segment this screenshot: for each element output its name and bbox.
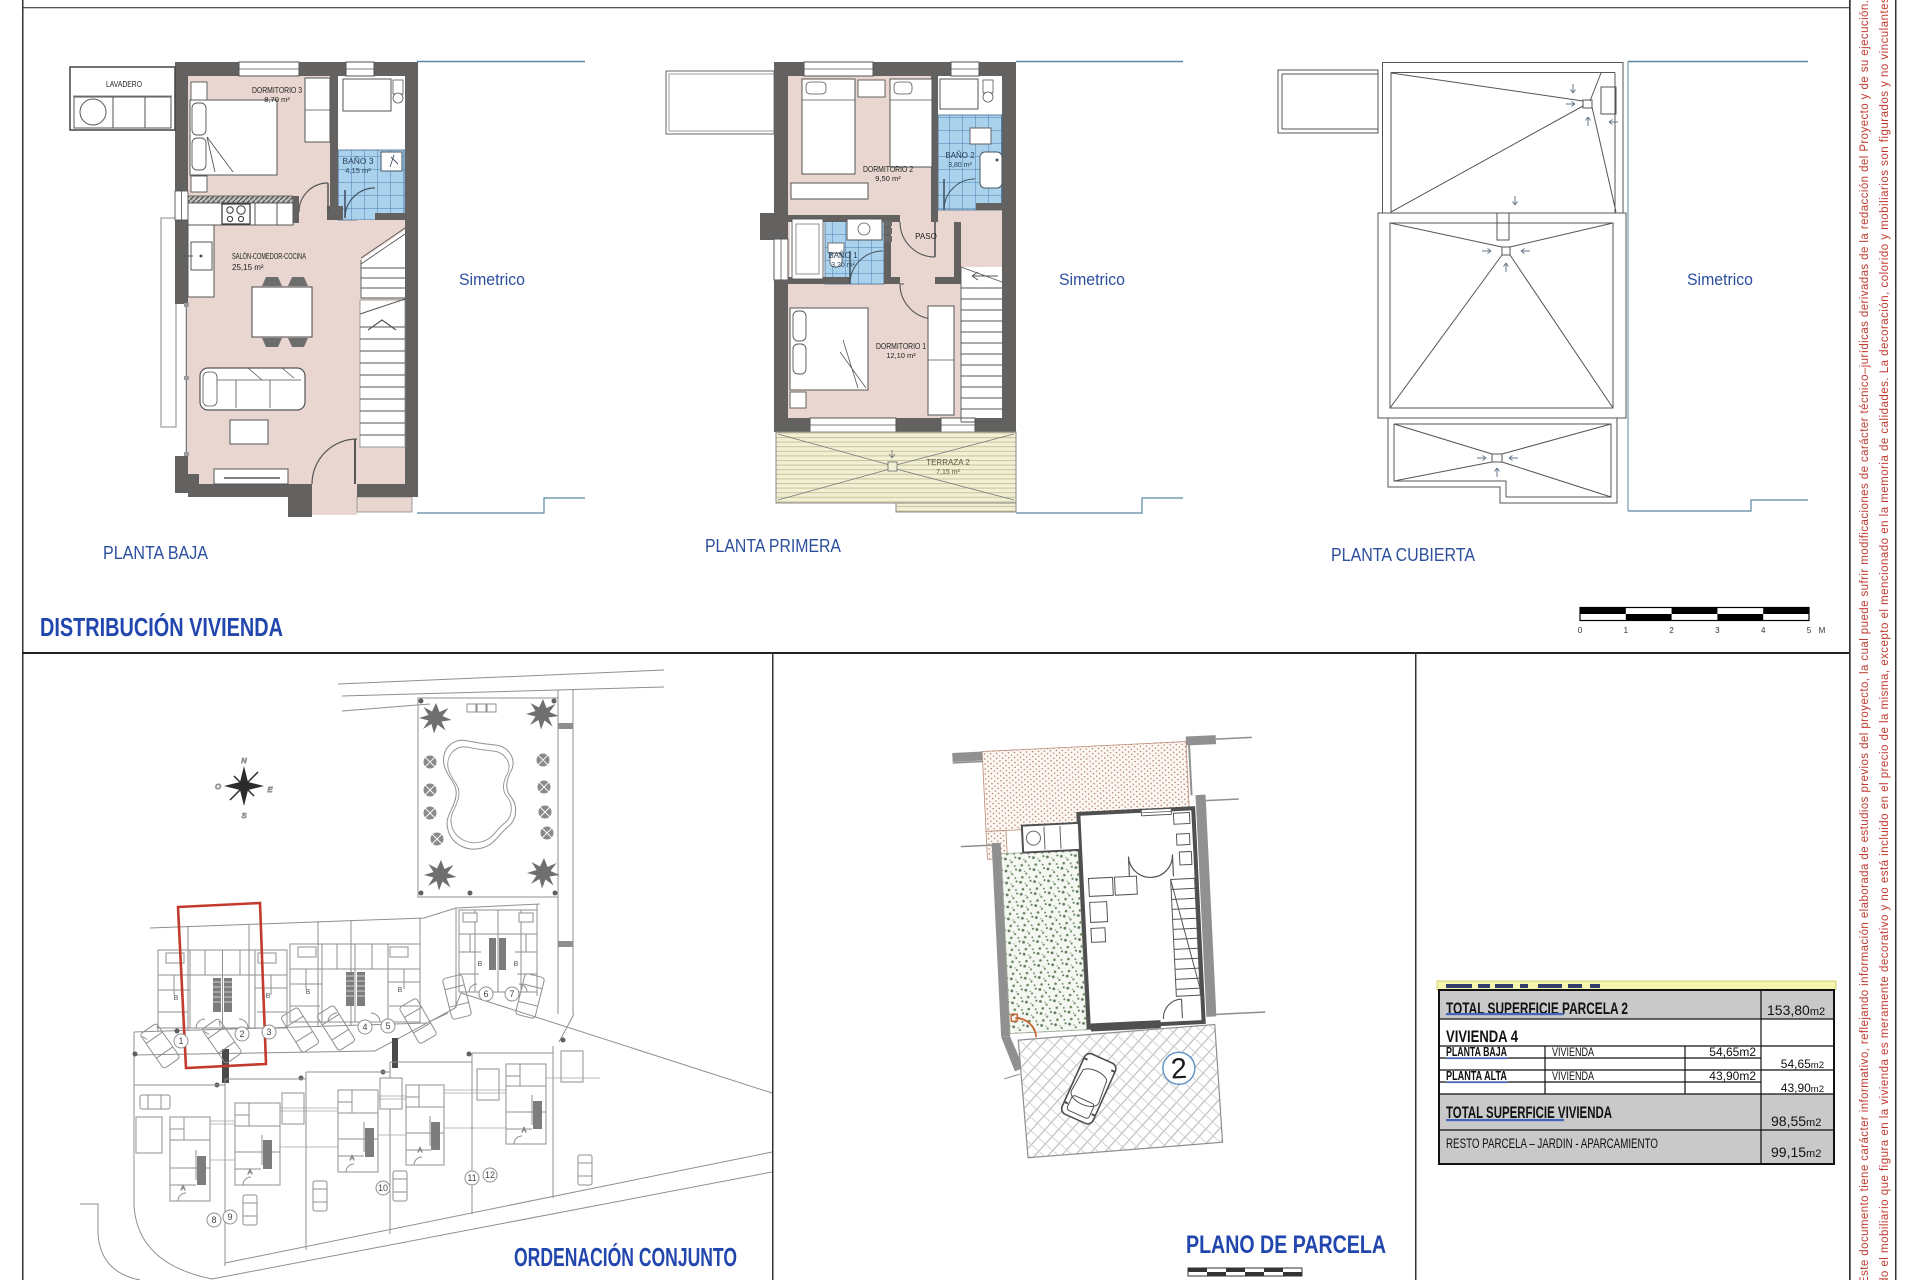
- svg-text:BAÑO 1: BAÑO 1: [828, 251, 858, 260]
- svg-text:54,65m2: 54,65m2: [1781, 1057, 1824, 1071]
- svg-text:Simetrico: Simetrico: [459, 270, 525, 289]
- svg-text:B: B: [478, 961, 483, 968]
- svg-text:DISTRIBUCIÓN VIVIENDA: DISTRIBUCIÓN VIVIENDA: [40, 612, 283, 642]
- svg-text:LAVADERO: LAVADERO: [106, 80, 142, 89]
- svg-text:PLANTA ALTA: PLANTA ALTA: [1446, 1069, 1507, 1083]
- svg-text:TERRAZA 2: TERRAZA 2: [926, 458, 970, 467]
- svg-text:RESTO PARCELA – JARDIN - APARC: RESTO PARCELA – JARDIN - APARCAMIENTO: [1446, 1136, 1658, 1151]
- svg-text:Este documento tiene carácter: Este documento tiene carácter informativ…: [1859, 0, 1871, 1280]
- svg-text:B: B: [398, 987, 403, 994]
- svg-text:3,80 m²: 3,80 m²: [948, 162, 972, 169]
- svg-text:BAÑO 2: BAÑO 2: [945, 151, 975, 160]
- svg-text:PLANTA BAJA: PLANTA BAJA: [103, 543, 208, 563]
- svg-text:SALÓN-COMEDOR-COCINA: SALÓN-COMEDOR-COCINA: [232, 251, 306, 261]
- svg-text:PLANTA BAJA: PLANTA BAJA: [1446, 1045, 1507, 1059]
- svg-text:BAÑO 3: BAÑO 3: [342, 156, 373, 166]
- svg-text:A: A: [350, 1155, 355, 1162]
- svg-text:ORDENACIÓN CONJUNTO: ORDENACIÓN CONJUNTO: [514, 1242, 737, 1272]
- svg-text:3: 3: [1715, 626, 1720, 635]
- svg-text:B: B: [514, 961, 519, 968]
- svg-text:4: 4: [362, 1022, 367, 1032]
- svg-text:B: B: [306, 989, 311, 996]
- svg-text:5: 5: [1807, 626, 1812, 635]
- svg-text:1: 1: [1624, 626, 1629, 635]
- svg-text:1: 1: [178, 1036, 183, 1046]
- svg-text:12: 12: [485, 1170, 495, 1180]
- svg-text:A: A: [418, 1147, 423, 1154]
- svg-text:4: 4: [1761, 626, 1766, 635]
- svg-text:do el mobiliario que figura en: do el mobiliario que figura en la vivien…: [1879, 0, 1891, 1280]
- svg-text:8: 8: [211, 1215, 216, 1225]
- svg-text:M: M: [1819, 626, 1826, 635]
- svg-text:DORMITORIO 2: DORMITORIO 2: [863, 164, 913, 174]
- svg-text:8,70 m²: 8,70 m²: [264, 95, 290, 104]
- svg-text:VIVIENDA 4: VIVIENDA 4: [1446, 1027, 1518, 1046]
- svg-text:4,15 m²: 4,15 m²: [345, 166, 371, 175]
- svg-text:5: 5: [385, 1021, 390, 1031]
- svg-text:2: 2: [239, 1029, 244, 1039]
- svg-text:N: N: [241, 756, 247, 765]
- svg-text:3,20 m²: 3,20 m²: [831, 262, 855, 269]
- svg-text:A: A: [248, 1169, 253, 1176]
- svg-text:10: 10: [378, 1183, 388, 1193]
- svg-text:A: A: [181, 1185, 186, 1192]
- svg-text:PLANO DE PARCELA: PLANO DE PARCELA: [1186, 1231, 1386, 1259]
- svg-text:9: 9: [227, 1212, 232, 1222]
- svg-text:B: B: [266, 993, 271, 1000]
- svg-text:VIVIENDA: VIVIENDA: [1552, 1045, 1594, 1059]
- svg-text:PLANTA PRIMERA: PLANTA PRIMERA: [705, 536, 841, 556]
- svg-text:6: 6: [483, 989, 488, 999]
- svg-text:0: 0: [1578, 626, 1583, 635]
- svg-text:43,90m2: 43,90m2: [1781, 1081, 1824, 1095]
- svg-text:54,65m2: 54,65m2: [1709, 1045, 1756, 1059]
- svg-text:PASO: PASO: [915, 232, 937, 241]
- svg-text:B: B: [174, 995, 179, 1002]
- svg-text:2: 2: [1170, 1053, 1188, 1086]
- svg-text:25,15 m²: 25,15 m²: [232, 263, 264, 272]
- svg-text:A: A: [522, 1127, 527, 1134]
- svg-text:12,10 m²: 12,10 m²: [886, 351, 916, 360]
- svg-text:VIVIENDA: VIVIENDA: [1552, 1069, 1594, 1083]
- svg-text:2: 2: [1669, 626, 1674, 635]
- svg-text:43,90m2: 43,90m2: [1709, 1069, 1756, 1083]
- svg-text:Simetrico: Simetrico: [1687, 270, 1753, 289]
- svg-text:Simetrico: Simetrico: [1059, 270, 1125, 289]
- svg-text:DORMITORIO 1: DORMITORIO 1: [876, 341, 926, 351]
- svg-text:3: 3: [266, 1027, 271, 1037]
- svg-text:S: S: [241, 811, 246, 820]
- svg-text:7,15 m²: 7,15 m²: [936, 469, 960, 476]
- svg-text:7: 7: [509, 989, 514, 999]
- svg-text:O: O: [215, 782, 221, 791]
- svg-text:DORMITORIO 3: DORMITORIO 3: [252, 85, 302, 95]
- svg-text:11: 11: [467, 1173, 476, 1183]
- svg-text:9,50 m²: 9,50 m²: [875, 174, 901, 183]
- svg-text:PLANTA CUBIERTA: PLANTA CUBIERTA: [1331, 545, 1475, 565]
